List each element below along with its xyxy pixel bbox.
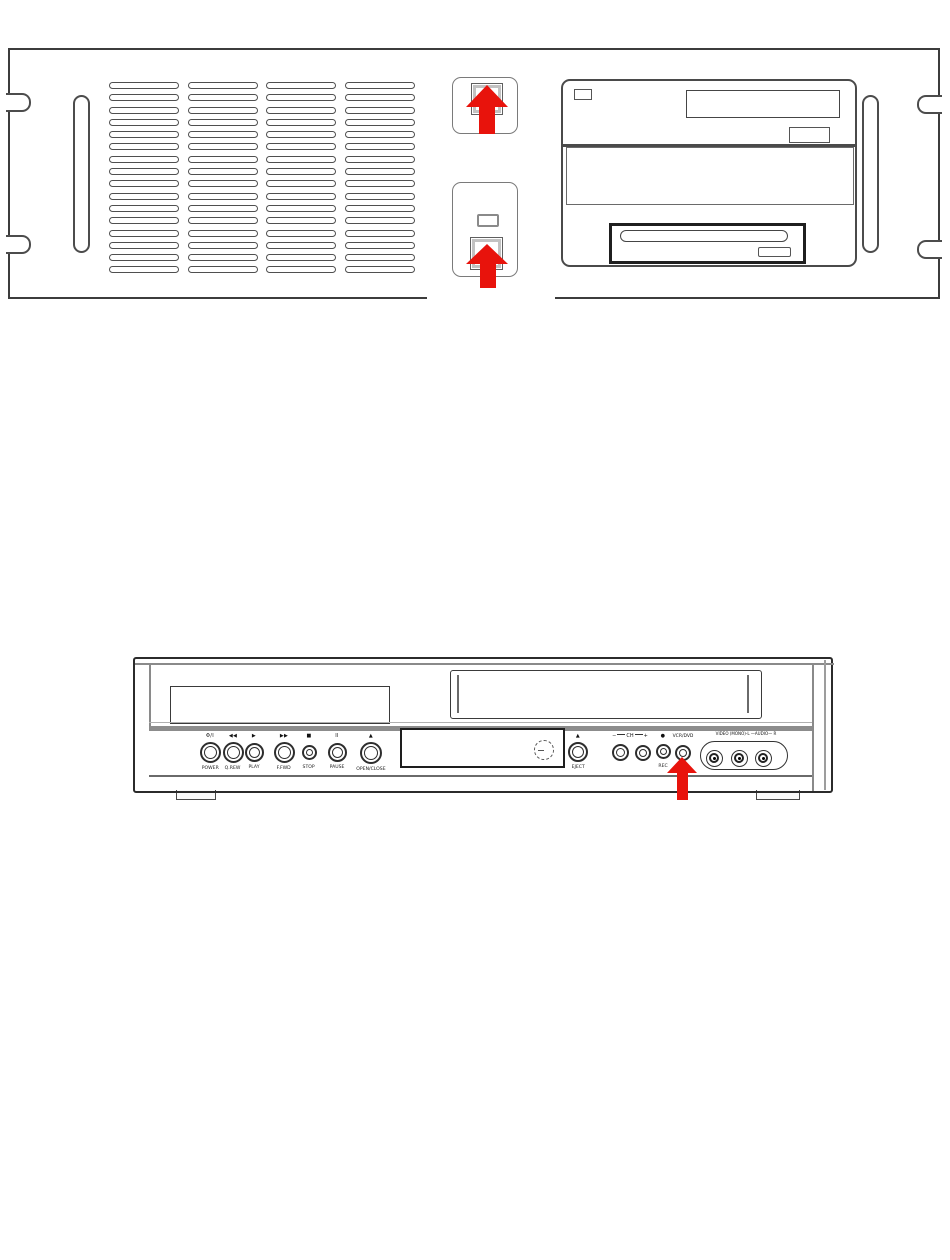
channel-label: − CH + — [605, 733, 655, 739]
vent-slot — [345, 156, 415, 163]
up-arrow-icon — [466, 244, 508, 264]
play-icon: ▶ — [252, 732, 256, 741]
vent-slot — [188, 230, 258, 237]
vent-slot — [188, 266, 258, 273]
eject-button-circle — [568, 742, 588, 762]
stop-button-circle — [302, 745, 317, 760]
fast-forward-button: ▶▶ F.FWD — [270, 732, 298, 771]
up-arrow-icon — [667, 757, 697, 773]
mounting-notch-top-left — [6, 93, 31, 112]
eject-icon: ▲ — [576, 732, 580, 741]
vent-slot — [188, 82, 258, 89]
vent-slot — [109, 180, 179, 187]
fast-forward-icon: ▶▶ — [280, 732, 288, 741]
vent-slot — [109, 230, 179, 237]
vent-slot — [266, 254, 336, 261]
vent-slot — [188, 180, 258, 187]
vent-slot — [345, 168, 415, 175]
manual-page: Φ/I POWER ◀◀ Q.REW ▶ PLAY ▶▶ F.FWD ■ STO… — [0, 0, 950, 1260]
vent-slot — [188, 205, 258, 212]
top-face-edge — [135, 663, 834, 665]
vent-slot — [188, 107, 258, 114]
drive-bay-panel — [561, 79, 857, 267]
vent-slot — [345, 230, 415, 237]
vent-slot — [266, 119, 336, 126]
front-display — [400, 728, 565, 768]
vent-slot — [266, 168, 336, 175]
vent-slot — [188, 242, 258, 249]
deck-shadow-line — [149, 722, 812, 723]
mounting-notch-bottom-left — [6, 235, 31, 254]
fast-forward-button-circle — [274, 742, 295, 763]
door-tick — [747, 675, 749, 713]
open-close-icon: ▲ — [369, 732, 373, 741]
vent-slot — [266, 242, 336, 249]
vent-slot — [345, 107, 415, 114]
up-arrow-icon — [466, 85, 508, 107]
stop-button: ■ STOP — [295, 732, 323, 770]
cd-drive-slot — [620, 230, 788, 242]
power-button-circle — [200, 742, 221, 763]
vent-slot — [345, 119, 415, 126]
pause-button-circle — [328, 743, 347, 762]
vent-slot — [109, 107, 179, 114]
vent-slot — [345, 217, 415, 224]
cd-eject-button — [758, 247, 791, 257]
vent-slot — [109, 254, 179, 261]
channel-bracket-left — [617, 734, 625, 735]
vent-slot — [345, 180, 415, 187]
av-jacks-label: VIDEO (MONO)-L —AUDIO— R — [701, 732, 791, 737]
vent-slot — [109, 193, 179, 200]
vent-slot — [188, 131, 258, 138]
audio-right-jack — [755, 750, 772, 767]
vent-slot — [109, 168, 179, 175]
vent-slot — [266, 156, 336, 163]
av-jack-panel — [700, 741, 788, 770]
vent-slot — [109, 266, 179, 273]
right-bevel-edge — [812, 663, 814, 791]
channel-bracket-right — [635, 734, 643, 735]
vent-slot — [188, 143, 258, 150]
vent-slot — [266, 107, 336, 114]
vent-slot — [266, 143, 336, 150]
stop-icon: ■ — [306, 732, 311, 741]
play-button-circle — [245, 743, 264, 762]
drive-activity-led — [574, 89, 592, 100]
vent-slot — [188, 168, 258, 175]
vent-slot — [109, 131, 179, 138]
vent-slot — [109, 119, 179, 126]
vent-slot — [188, 217, 258, 224]
vent-slot — [345, 205, 415, 212]
cd-drive — [609, 223, 806, 264]
vent-slot — [266, 205, 336, 212]
audio-left-jack — [731, 750, 748, 767]
clock-icon — [534, 740, 554, 760]
vent-slot — [109, 217, 179, 224]
expansion-bay — [566, 147, 854, 205]
eject-button: ▲ EJECT — [564, 732, 592, 770]
vent-slot — [345, 143, 415, 150]
video-jack — [706, 750, 723, 767]
vent-slot — [109, 242, 179, 249]
vent-slot — [266, 230, 336, 237]
rack-handle-slot-right — [862, 95, 879, 253]
vent-slot — [345, 242, 415, 249]
vent-slot — [188, 193, 258, 200]
tape-drive-button — [789, 127, 830, 143]
side-panel-edge — [824, 660, 826, 790]
vent-slot — [188, 94, 258, 101]
channel-plus-sign: + — [644, 733, 648, 739]
channel-text: CH — [626, 733, 633, 739]
vcr-dvd-label: VCR/DVD — [660, 734, 706, 739]
vcr-dvd-front-panel: Φ/I POWER ◀◀ Q.REW ▶ PLAY ▶▶ F.FWD ■ STO… — [133, 656, 838, 806]
vent-slot — [345, 254, 415, 261]
vent-slot — [109, 82, 179, 89]
rack-handle-slot-left — [73, 95, 90, 253]
vent-slot — [266, 180, 336, 187]
vent-slot — [345, 82, 415, 89]
vent-slot — [266, 82, 336, 89]
channel-down-button — [612, 744, 629, 761]
door-tick — [457, 675, 459, 713]
vent-slot — [188, 156, 258, 163]
rewind-icon: ◀◀ — [229, 732, 237, 741]
rack-frame-gap — [427, 294, 555, 304]
vent-slot — [109, 94, 179, 101]
vent-slot — [266, 266, 336, 273]
left-bevel-edge — [149, 663, 151, 727]
pause-icon: II — [335, 732, 339, 741]
control-panel-bottom-line — [149, 775, 812, 777]
vent-slot — [109, 156, 179, 163]
open-close-button: ▲ OPEN/CLOSE — [357, 732, 385, 772]
play-button: ▶ PLAY — [240, 732, 268, 770]
tape-drive-slot — [686, 90, 840, 118]
vent-slot — [188, 254, 258, 261]
vent-slot — [266, 131, 336, 138]
vent-slot — [345, 193, 415, 200]
dvd-tray-door — [170, 686, 390, 724]
vent-grille — [109, 82, 415, 273]
vent-slot — [188, 119, 258, 126]
vent-slot — [345, 94, 415, 101]
pause-button: II PAUSE — [323, 732, 351, 770]
mounting-notch-top-right — [917, 95, 942, 114]
vent-slot — [345, 266, 415, 273]
vent-slot — [109, 143, 179, 150]
vhs-cassette-door — [450, 670, 762, 719]
status-led — [477, 214, 499, 227]
channel-minus-sign: − — [612, 733, 616, 739]
mounting-notch-bottom-right — [917, 240, 942, 259]
vent-slot — [109, 205, 179, 212]
power-symbol: Φ/I — [206, 732, 214, 741]
open-close-button-circle — [360, 742, 382, 764]
vent-slot — [266, 193, 336, 200]
vent-slot — [345, 131, 415, 138]
vent-slot — [266, 217, 336, 224]
vent-slot — [266, 94, 336, 101]
